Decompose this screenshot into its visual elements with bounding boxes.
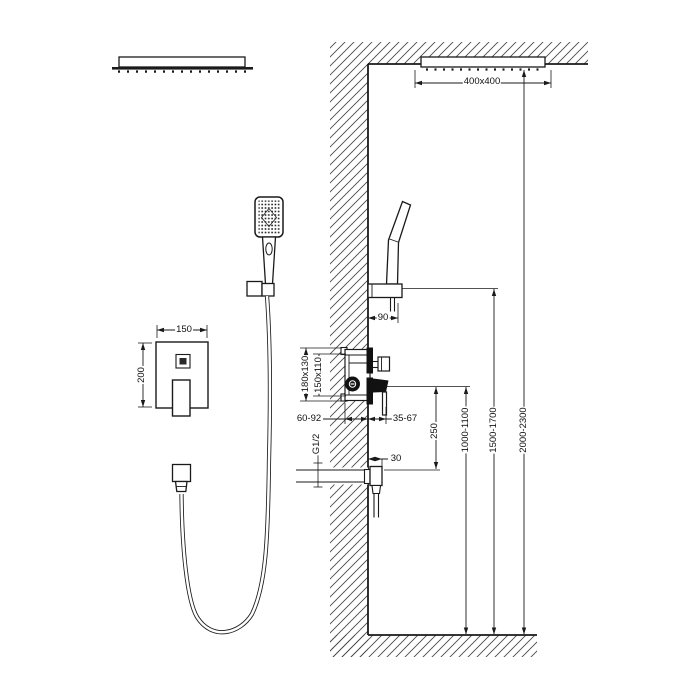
hose-fitting: [173, 465, 191, 492]
label-mixer-height: 1000-1100: [461, 407, 471, 454]
mixer-rough-in-box: [341, 348, 370, 402]
label-rough-in-outer: 180x130: [301, 355, 311, 393]
diagram-geometry: [0, 0, 700, 700]
hand-shower-installed: [368, 202, 411, 312]
label-handshower-height: 1500-1700: [489, 406, 499, 453]
mixer-trim-and-handle: [367, 348, 390, 416]
label-rough-in-depth: 60-92: [296, 414, 322, 424]
overhead-shower-product-view: [112, 57, 253, 72]
overhead-shower-installed: [421, 57, 545, 70]
hand-shower-bracket-left: [247, 282, 274, 297]
label-outlet-drop: 250: [430, 422, 440, 440]
label-outlet-protrusion: 30: [390, 454, 403, 464]
control-plate-front-view: [156, 342, 208, 416]
hand-shower-product-view: [255, 197, 283, 284]
label-rough-in-cutout: 150x110: [314, 356, 324, 394]
label-handshower-offset: 90: [377, 313, 390, 323]
label-plate-width: 150: [175, 325, 193, 335]
label-trim-protrusion: 35-67: [392, 414, 418, 424]
label-thread-size: G1/2: [312, 433, 322, 456]
supply-pipe: [296, 468, 368, 485]
wall-section-outline: [368, 64, 588, 635]
label-overhead-size: 400x400: [463, 77, 501, 87]
label-plate-height: 200: [137, 366, 147, 384]
shower-installation-diagram: 400x400 150 200 180x130 150x110 60-92 35…: [0, 0, 700, 700]
label-overhead-height: 2000-2300: [519, 406, 529, 453]
